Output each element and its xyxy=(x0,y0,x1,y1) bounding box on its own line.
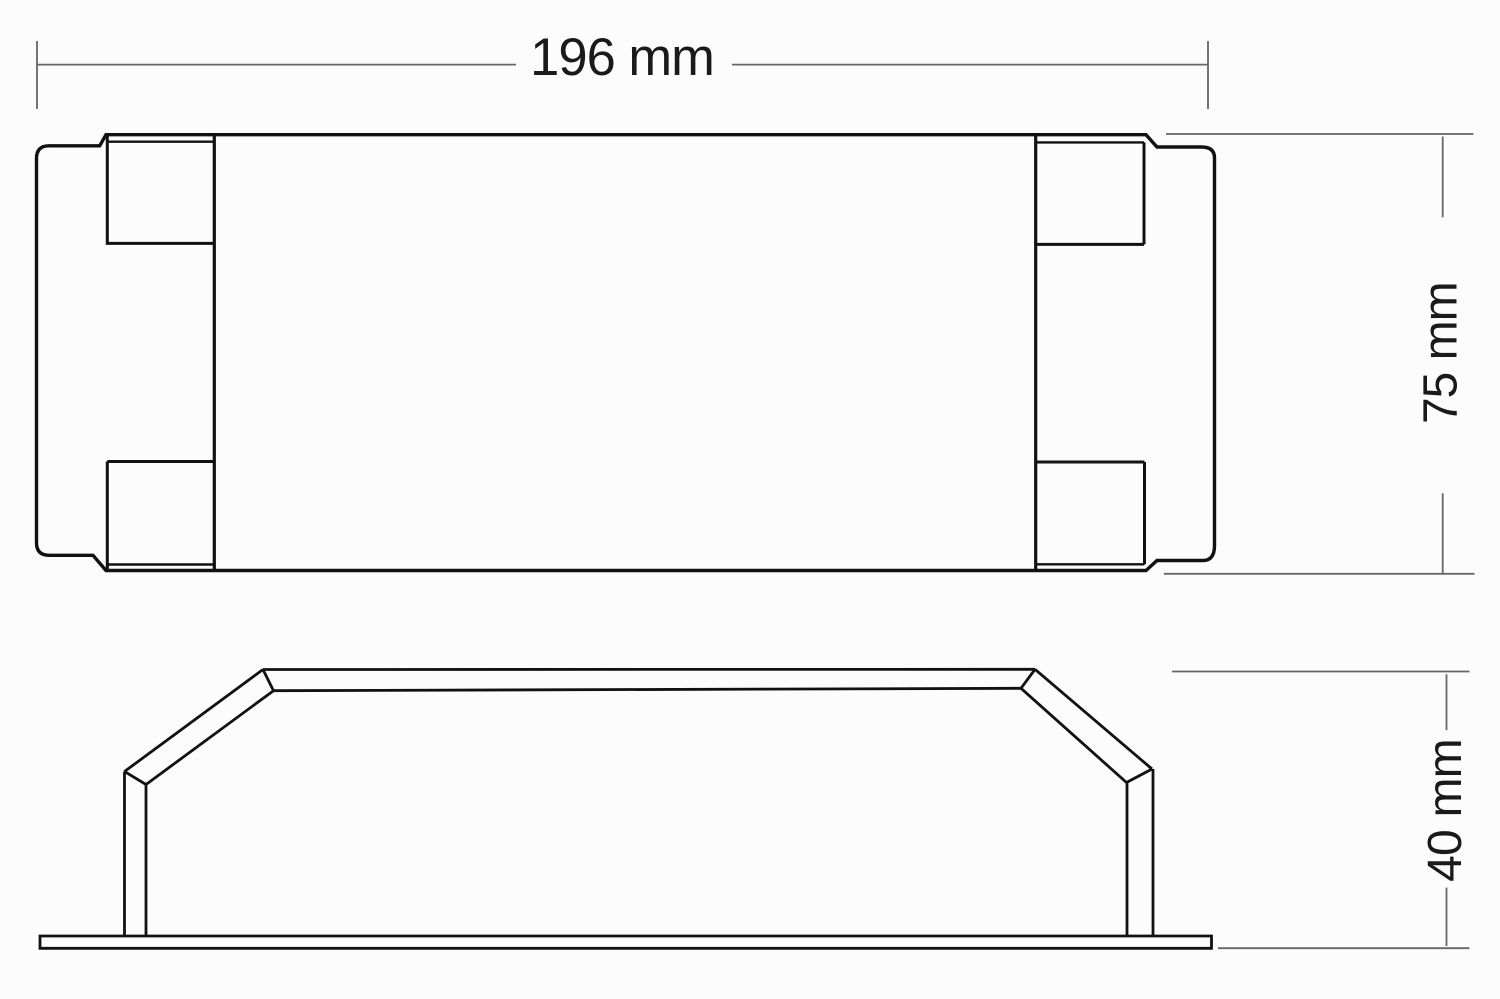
svg-text:75 mm: 75 mm xyxy=(1415,282,1468,424)
svg-text:196 mm: 196 mm xyxy=(530,28,714,87)
svg-text:40 mm: 40 mm xyxy=(1419,739,1472,882)
